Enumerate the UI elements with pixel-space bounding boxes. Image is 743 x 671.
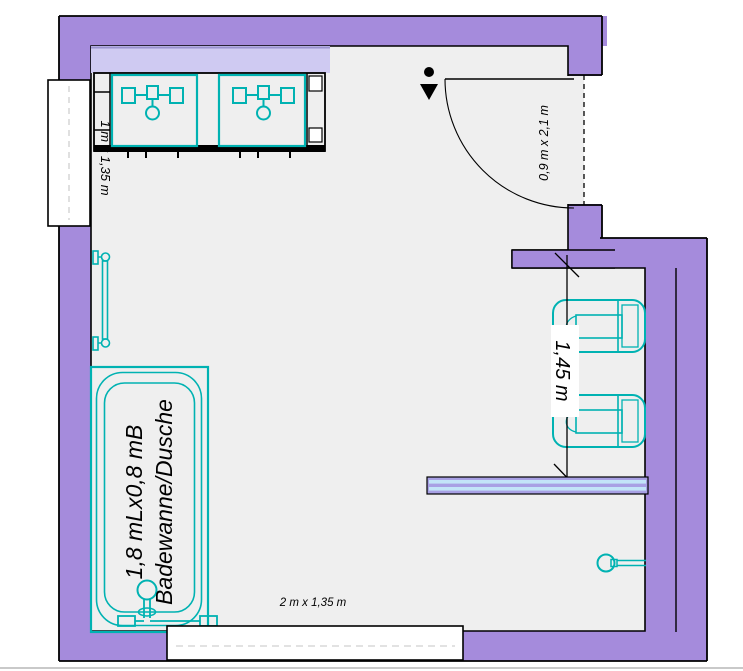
bathtub-size-label[interactable]: 1,8 mLx0,8 mB (121, 425, 147, 580)
wc-niche-depth-label[interactable]: 1,45 m (551, 340, 573, 401)
wc-partition-stub[interactable] (512, 250, 615, 268)
window-left-size-label[interactable]: 1 m x 1,35 m (98, 120, 113, 195)
glass-partition[interactable] (427, 477, 648, 494)
bathtub-name-label[interactable]: Badewanne/Dusche (151, 399, 177, 605)
floor-plan-canvas: 0,9 m x 2,1 m (0, 0, 743, 671)
window-bottom-size-label[interactable]: 2 m x 1,35 m (279, 597, 347, 609)
vanity-right-shelf-top (309, 76, 322, 91)
mirror-shelf[interactable] (91, 46, 330, 73)
wall-right-below-door[interactable] (568, 204, 602, 240)
door-direction-dot (424, 67, 434, 77)
wall-top[interactable] (59, 16, 607, 46)
wall-right-above-door[interactable] (568, 16, 602, 76)
vanity-right-shelf-bottom (309, 128, 322, 142)
door-size-label[interactable]: 0,9 m x 2,1 m (537, 105, 551, 181)
